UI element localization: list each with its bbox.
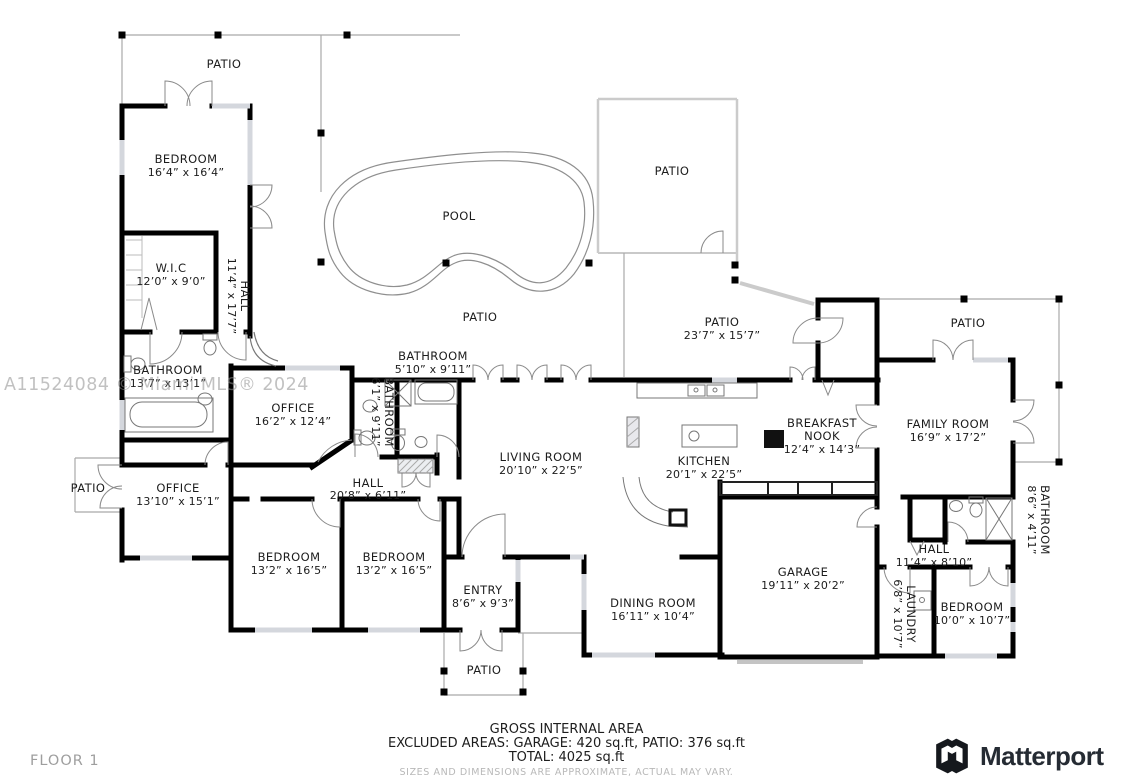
room-dims-hall1: 11’4” x 17’7”	[225, 258, 238, 335]
room-label-bathroom3: BATHROOM	[398, 349, 468, 363]
footer-gross-area: GROSS INTERNAL AREA	[0, 723, 1133, 736]
room-label-bathroom4: BATHROOM	[1038, 485, 1052, 555]
room-label-bedroom4: BEDROOM	[941, 600, 1004, 614]
room-label-laundry: LAUNDRY	[904, 585, 918, 643]
room-label-office1: OFFICE	[271, 401, 314, 415]
room-dims-family: 16’9” x 17’2”	[910, 431, 987, 444]
room-label-bedroom1: BEDROOM	[155, 152, 218, 166]
mls-watermark: A11524084 © Miami MLS® 2024	[4, 375, 309, 395]
room-label-patio-pool: PATIO	[463, 310, 498, 324]
room-label-kitchen: KITCHEN	[678, 454, 731, 468]
pool-outline	[324, 152, 593, 295]
room-label-bedroom3: BEDROOM	[363, 550, 426, 564]
room-dims-living: 20’10” x 22’5”	[499, 464, 583, 477]
curved-wall	[250, 332, 278, 366]
room-label-patio-bottom: PATIO	[467, 663, 502, 677]
room-dims-bathroom2: 6’1” x 9’11”	[369, 377, 382, 446]
room-dims-garage: 19’11” x 20’2”	[761, 579, 845, 592]
room-label-wic: W.I.C	[156, 261, 187, 275]
room-dims-bedroom4: 10’0” x 10’7”	[934, 614, 1011, 627]
room-dims-bedroom3: 13’2” x 16’5”	[356, 564, 433, 577]
room-dims-hall-main: 20’8” x 6’11”	[330, 489, 407, 502]
room-label-patio-left: PATIO	[71, 481, 106, 495]
room-dims-hall2: 11’4” x 8’10”	[896, 556, 973, 569]
room-dims-patio-right: 23’7” x 15’7”	[684, 329, 761, 342]
room-label-family: FAMILY ROOM	[907, 417, 990, 431]
matterport-icon	[933, 737, 971, 775]
room-label-hall1: HALL	[238, 281, 252, 312]
room-label-patio-right: PATIO	[705, 315, 740, 329]
room-dims-dining: 16’11” x 10’4”	[611, 610, 695, 623]
room-dims-office2: 13’10” x 15’1”	[136, 495, 220, 508]
room-label-office2: OFFICE	[156, 481, 199, 495]
room-dims-entry: 8’6” x 9’3”	[452, 597, 514, 610]
matterport-wordmark: Matterport	[980, 741, 1104, 772]
room-label-bathroom2: BATHROOM	[382, 377, 396, 447]
floor-plan-page: PATIO BEDROOM 16’4” x 16’4” W.I.C 12’0” …	[0, 0, 1133, 778]
room-dims-bathroom3: 5’10” x 9’11”	[395, 363, 472, 376]
room-dims-nook: 12’4” x 14’3”	[784, 443, 861, 456]
garage-closet-strip	[720, 482, 877, 495]
room-dims-kitchen: 20’1” x 22’5”	[666, 468, 743, 481]
room-dims-bathroom4: 8’6” x 4’11”	[1025, 485, 1038, 554]
room-label-garage: GARAGE	[778, 565, 829, 579]
room-dims-laundry: 6’8” x 10’7”	[891, 579, 904, 648]
room-label-living: LIVING ROOM	[500, 450, 583, 464]
room-label-patio-top-left: PATIO	[207, 57, 242, 71]
room-label-patio-upper-right: PATIO	[655, 164, 690, 178]
room-label-entry: ENTRY	[463, 583, 503, 597]
floor-label: FLOOR 1	[30, 753, 100, 769]
room-label-patio-top-right: PATIO	[951, 316, 986, 330]
matterport-logo: Matterport	[933, 737, 1104, 775]
room-label-nook-2: NOOK	[804, 429, 840, 443]
room-label-bedroom2: BEDROOM	[258, 550, 321, 564]
room-label-hall2: HALL	[919, 542, 950, 556]
room-label-pool: POOL	[442, 209, 475, 223]
room-dims-bedroom2: 13’2” x 16’5”	[251, 564, 328, 577]
fence-posts	[119, 32, 1063, 696]
room-label-dining: DINING ROOM	[610, 596, 696, 610]
room-label-nook-1: BREAKFAST	[787, 416, 857, 430]
room-dims-wic: 12’0” x 9’0”	[136, 275, 205, 288]
room-label-hall-main: HALL	[353, 476, 384, 490]
room-dims-office1: 16’2” x 12’4”	[255, 415, 332, 428]
room-dims-bedroom1: 16’4” x 16’4”	[148, 166, 225, 179]
